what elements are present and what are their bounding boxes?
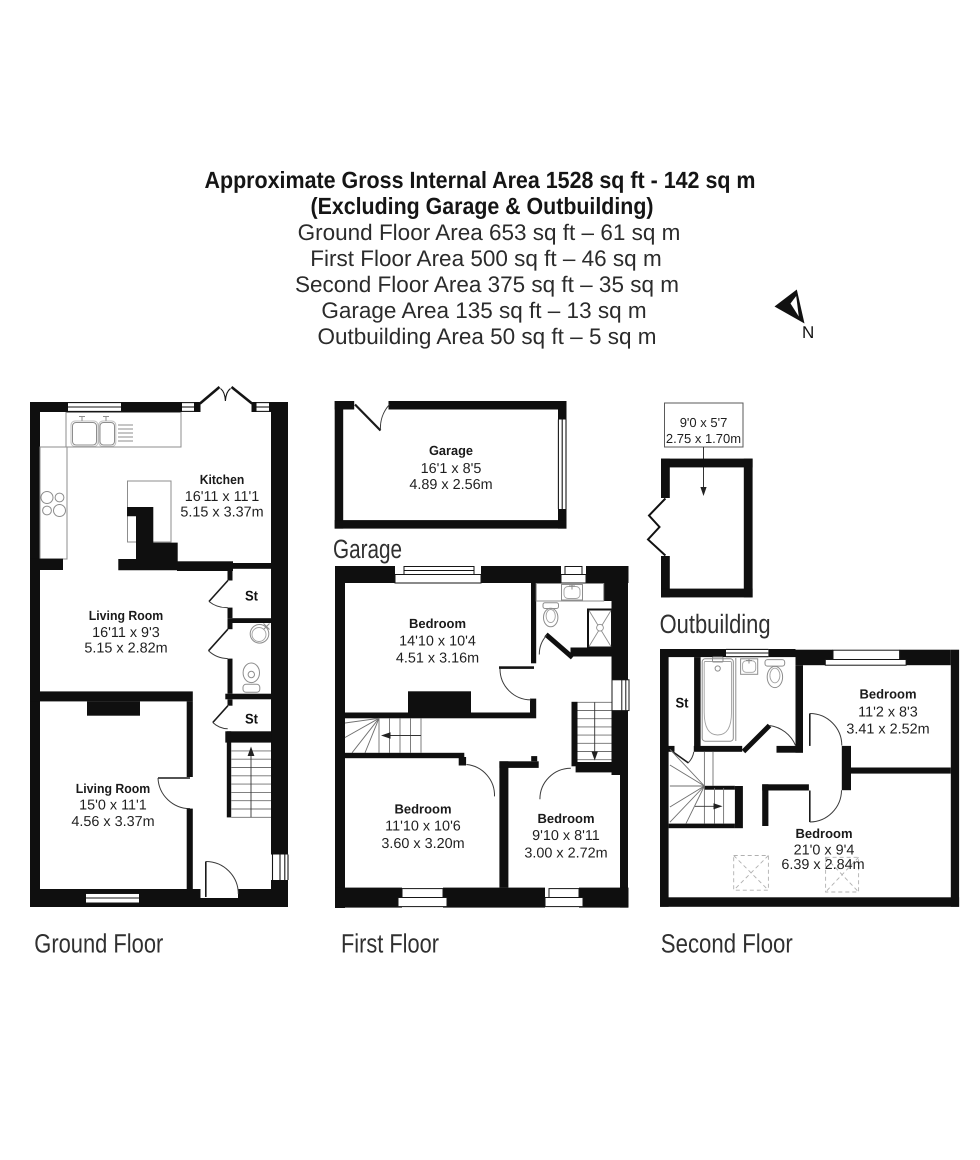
svg-text:St: St [245,588,258,604]
svg-text:(Excluding Garage & Outbuildin: (Excluding Garage & Outbuilding) [311,193,654,219]
svg-text:First Floor: First Floor [341,929,439,959]
svg-text:4.56 x 3.37m: 4.56 x 3.37m [71,814,154,830]
svg-text:Ground Floor Area 653 sq ft –: Ground Floor Area 653 sq ft – 61 sq m [298,220,681,245]
svg-text:Bedroom: Bedroom [538,811,595,826]
svg-text:15'0 x 11'1: 15'0 x 11'1 [79,798,147,814]
svg-text:5.15 x 2.82m: 5.15 x 2.82m [84,641,167,657]
svg-text:3.41 x 2.52m: 3.41 x 2.52m [846,721,929,737]
svg-text:St: St [245,711,258,727]
svg-text:Second Floor: Second Floor [661,929,793,959]
svg-text:16'1 x 8'5: 16'1 x 8'5 [421,461,482,477]
svg-text:11'10 x 10'6: 11'10 x 10'6 [385,819,461,835]
svg-text:3.60 x 3.20m: 3.60 x 3.20m [381,836,464,852]
svg-text:Garage Area 135 sq ft – 13 sq: Garage Area 135 sq ft – 13 sq m [321,298,646,323]
svg-text:5.15 x 3.37m: 5.15 x 3.37m [180,505,263,521]
svg-text:9'10 x 8'11: 9'10 x 8'11 [532,828,600,844]
svg-text:Approximate Gross Internal Are: Approximate Gross Internal Area 1528 sq … [205,167,756,193]
svg-text:Outbuilding: Outbuilding [660,609,771,639]
svg-text:11'2 x 8'3: 11'2 x 8'3 [858,705,918,721]
svg-text:St: St [676,695,689,711]
svg-text:9'0 x 5'7: 9'0 x 5'7 [680,415,728,430]
svg-text:Garage: Garage [333,534,402,564]
svg-text:3.00 x 2.72m: 3.00 x 2.72m [524,845,607,861]
svg-text:Bedroom: Bedroom [860,686,917,701]
svg-text:Living Room: Living Room [89,608,164,623]
svg-text:4.89 x 2.56m: 4.89 x 2.56m [409,477,492,493]
svg-text:2.75 x 1.70m: 2.75 x 1.70m [666,431,741,446]
svg-text:Bedroom: Bedroom [395,801,452,816]
svg-text:Second Floor Area 375 sq ft –: Second Floor Area 375 sq ft – 35 sq m [295,272,679,297]
svg-text:Outbuilding Area 50 sq ft – 5: Outbuilding Area 50 sq ft – 5 sq m [318,324,657,349]
svg-text:4.51 x 3.16m: 4.51 x 3.16m [396,651,479,667]
svg-text:Living Room: Living Room [76,781,151,796]
svg-text:6.39 x 2.84m: 6.39 x 2.84m [781,857,864,873]
svg-text:Bedroom: Bedroom [796,826,853,841]
svg-text:First Floor Area 500 sq ft – 4: First Floor Area 500 sq ft – 46 sq m [310,246,661,271]
svg-text:16'11 x 9'3: 16'11 x 9'3 [92,625,160,641]
svg-text:N: N [802,323,814,342]
svg-text:Bedroom: Bedroom [409,616,466,631]
svg-text:Garage: Garage [429,443,473,458]
svg-text:16'11 x 11'1: 16'11 x 11'1 [185,489,260,505]
svg-text:Kitchen: Kitchen [200,472,245,487]
svg-text:14'10 x 10'4: 14'10 x 10'4 [399,633,476,649]
svg-text:Ground Floor: Ground Floor [34,928,163,958]
